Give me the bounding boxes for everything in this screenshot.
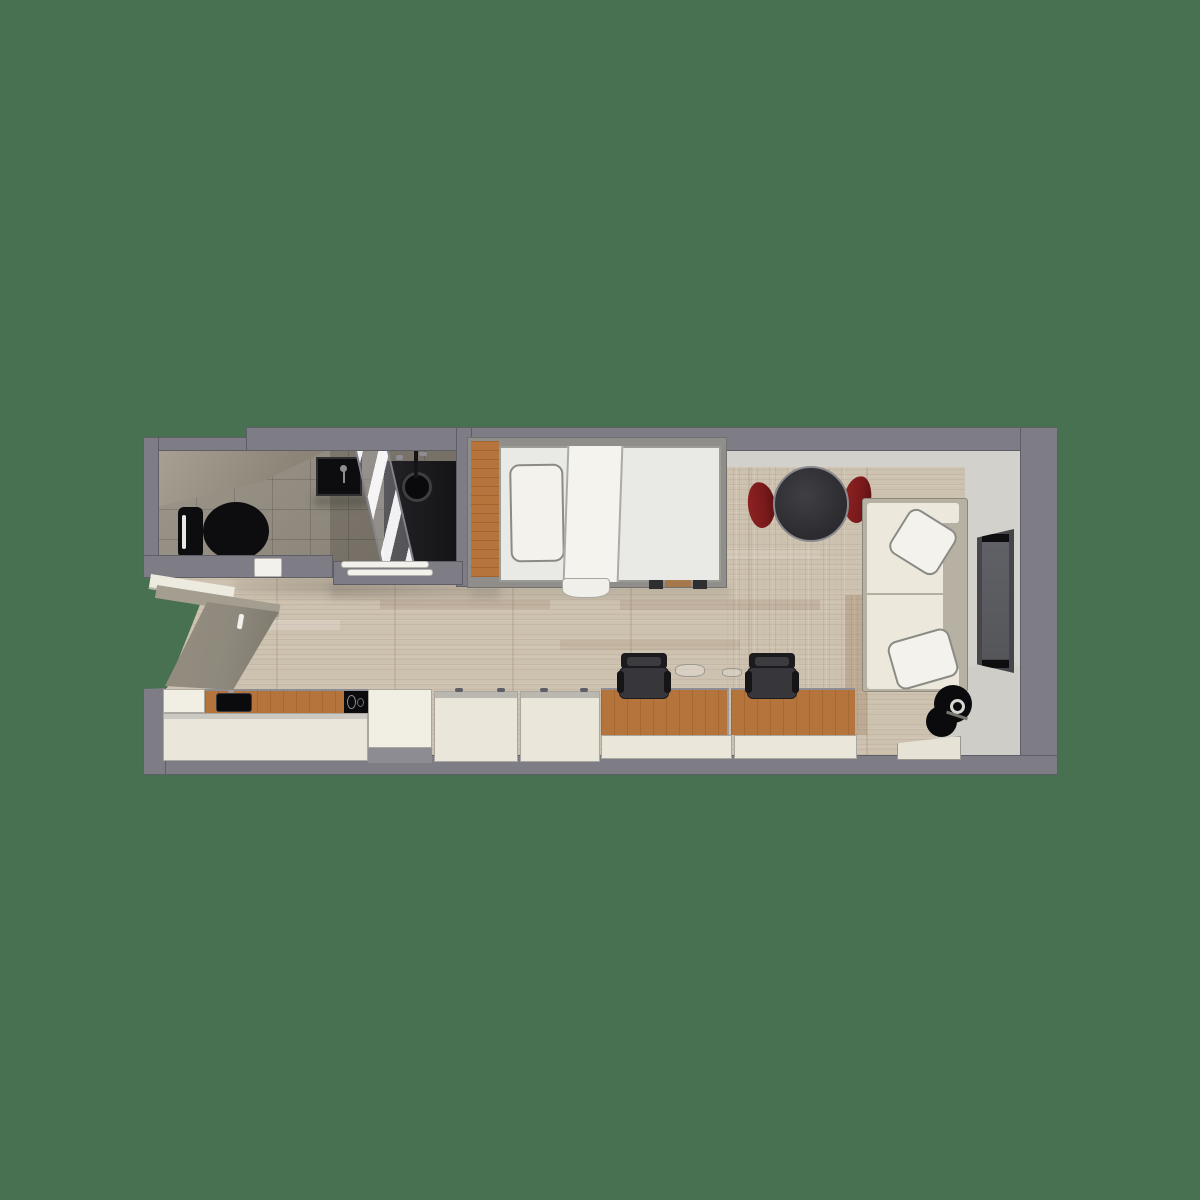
floor-mat (368, 748, 432, 763)
kitchen-cabinet (163, 713, 368, 761)
faucet-stem (343, 471, 345, 483)
chair-backrest-inner (755, 657, 789, 666)
wardrobe-cabinet-2 (520, 691, 600, 762)
bed-foot (693, 580, 707, 589)
chair-armrest (664, 671, 671, 693)
pillow (509, 464, 565, 563)
cabinet-hinge-icon (540, 688, 548, 692)
sofa-seam (867, 593, 943, 595)
cooktop-burner-icon (347, 695, 356, 709)
bed-foot (649, 580, 663, 589)
shower-control-icon (396, 455, 403, 460)
dining-table (773, 466, 849, 542)
cabinet-hinge-icon (455, 688, 463, 692)
bed-base-wood (665, 580, 691, 587)
bathroom-bottom-wall (143, 555, 333, 578)
cabinet-edge (435, 692, 517, 698)
desk-drawers-right (734, 735, 857, 759)
blanket-tail (562, 578, 610, 598)
toilet-tank (178, 507, 203, 558)
cabinet-edge (164, 714, 367, 719)
cooktop-burner-icon (357, 698, 364, 707)
cabinet-hinge-icon (580, 688, 588, 692)
chair-seat (619, 667, 669, 699)
toilet-bowl (203, 502, 269, 560)
desk-clutter (722, 668, 742, 677)
tv-screen (982, 541, 1009, 659)
toilet-tank-highlight (182, 515, 186, 549)
cabinet-edge (521, 692, 599, 698)
kitchen-cooktop (344, 691, 368, 713)
office-chair-right (745, 651, 801, 703)
chair-seat (747, 667, 797, 699)
desk-clutter (675, 664, 705, 677)
kitchen-end-panel (163, 689, 205, 713)
floor-plan-canvas (0, 0, 1200, 1200)
desk-drawers-left (601, 735, 732, 759)
bathroom-door-threshold (254, 558, 282, 577)
chair-armrest (617, 671, 624, 693)
wardrobe-cabinet-1 (434, 691, 518, 762)
shower-threshold (341, 561, 429, 568)
office-chair-left (617, 651, 673, 703)
cabinet-hinge-icon (497, 688, 505, 692)
chair-armrest (792, 671, 799, 693)
kitchen-sink (216, 693, 252, 712)
wall-tv (977, 529, 1014, 673)
right-wall (1020, 427, 1058, 775)
blanket-runner (563, 446, 624, 582)
chair-backrest-inner (627, 657, 661, 666)
headboard (471, 441, 499, 577)
shower-control-icon (419, 452, 427, 456)
chair-armrest (745, 671, 752, 693)
tall-cabinet (368, 689, 432, 748)
vanity-sink (316, 457, 362, 496)
shower-threshold (347, 569, 433, 576)
